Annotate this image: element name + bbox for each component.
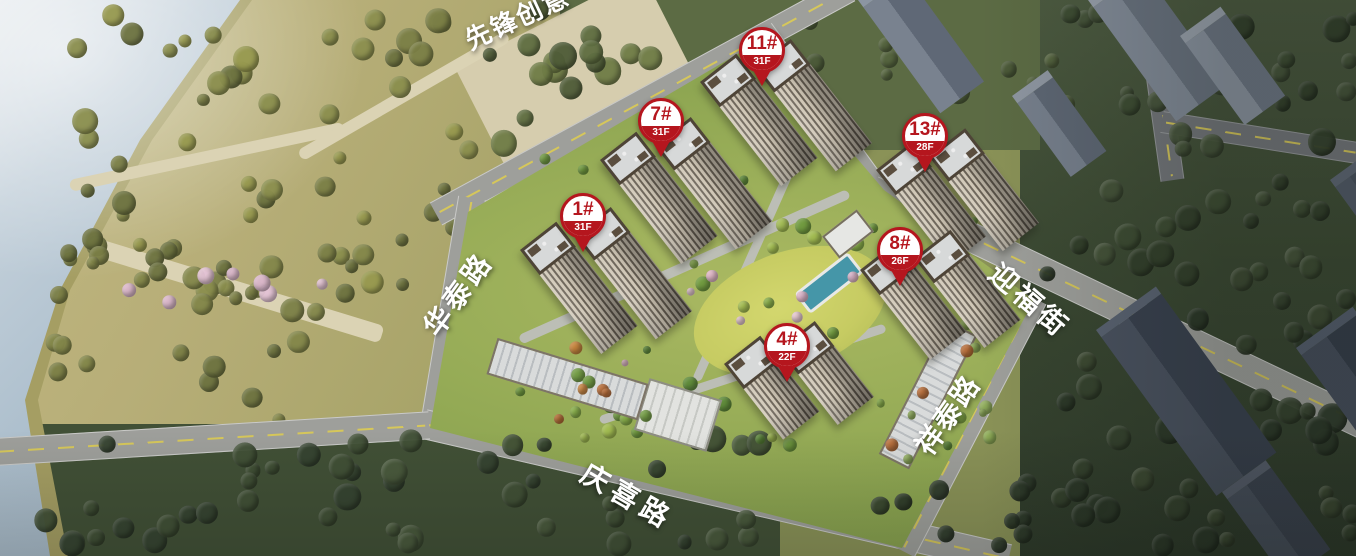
pin-bubble: 1# 31F — [560, 193, 606, 239]
tree — [1004, 513, 1020, 529]
tree — [396, 234, 409, 247]
tree — [638, 47, 662, 71]
tree — [1236, 334, 1257, 355]
pin-number: 4# — [767, 326, 807, 351]
tree — [736, 510, 756, 530]
tree — [1093, 497, 1120, 524]
tree — [1255, 191, 1271, 207]
tree — [386, 522, 401, 537]
tree — [1308, 128, 1336, 156]
tree — [580, 432, 591, 443]
pin-number: 11# — [742, 30, 782, 55]
tree — [1341, 524, 1356, 541]
tree — [526, 474, 541, 489]
aerial-site-map: 先锋创意 华泰路 迎福街 祥泰路 庆喜路 1# 31F 4# 22F 7# 31… — [0, 0, 1356, 556]
tree — [163, 43, 178, 58]
tree — [242, 387, 263, 408]
pin-floors: 31F — [641, 126, 681, 141]
tree — [348, 434, 369, 455]
pin-floors: 28F — [905, 141, 945, 156]
tree — [233, 46, 259, 72]
tree — [1342, 504, 1356, 523]
tree — [267, 344, 281, 358]
tree — [1076, 374, 1102, 400]
tree — [1219, 532, 1235, 548]
pin-floors: 31F — [742, 55, 782, 70]
tree — [577, 384, 588, 395]
tree — [1230, 268, 1254, 292]
pin-tail — [916, 156, 934, 172]
tree — [86, 256, 99, 269]
tree — [80, 183, 95, 198]
tree — [579, 40, 603, 64]
pin-floors: 26F — [880, 255, 920, 270]
tree — [385, 49, 403, 67]
tree — [570, 406, 582, 418]
tree — [336, 284, 355, 303]
pin-tail — [652, 141, 670, 157]
tree — [253, 275, 270, 292]
tree — [501, 481, 528, 508]
tree — [364, 10, 385, 31]
tree — [1151, 534, 1174, 556]
tree — [111, 156, 128, 173]
tree — [1346, 12, 1356, 26]
tree — [705, 528, 728, 551]
tree — [265, 461, 280, 476]
tree — [396, 278, 410, 292]
tree — [317, 243, 336, 262]
tree — [112, 191, 136, 215]
pin-bubble: 8# 26F — [877, 227, 923, 273]
building-pin-1[interactable]: 1# 31F — [560, 193, 606, 252]
tree — [606, 531, 631, 556]
tree — [502, 434, 524, 456]
tree — [1336, 82, 1356, 102]
tree — [99, 436, 116, 453]
pin-tail — [891, 270, 909, 286]
tree — [677, 534, 692, 549]
tree — [515, 387, 525, 397]
tree — [361, 271, 384, 294]
pin-tail — [753, 70, 771, 86]
tree — [755, 434, 765, 444]
tree — [397, 532, 418, 553]
tree — [67, 38, 87, 58]
tree — [1164, 496, 1190, 522]
tree — [549, 42, 577, 70]
tree — [559, 77, 582, 100]
tree — [178, 133, 196, 151]
pin-bubble: 13# 28F — [902, 113, 948, 159]
tree — [83, 501, 99, 517]
building-pin-4[interactable]: 4# 22F — [764, 323, 810, 382]
tree — [929, 480, 949, 500]
tree — [446, 123, 464, 141]
tree — [121, 22, 144, 45]
tree — [880, 68, 893, 81]
tree — [191, 293, 213, 315]
tree — [1200, 134, 1224, 158]
tree — [1305, 416, 1333, 444]
tree — [157, 514, 180, 537]
tree — [1071, 504, 1095, 528]
tree — [60, 244, 78, 262]
tree — [425, 8, 451, 34]
tree — [261, 179, 283, 201]
pin-floors: 22F — [767, 351, 807, 366]
tree — [73, 108, 99, 134]
pin-number: 8# — [880, 230, 920, 255]
pin-bubble: 4# 22F — [764, 323, 810, 369]
pin-bubble: 7# 31F — [638, 98, 684, 144]
tree — [352, 244, 374, 266]
tree — [1207, 509, 1225, 527]
tree — [529, 62, 553, 86]
tree — [648, 460, 666, 478]
tree — [1341, 53, 1356, 69]
tree — [880, 50, 898, 68]
tree — [517, 110, 534, 127]
pin-tail — [778, 366, 796, 382]
tree — [1065, 478, 1089, 502]
tree — [767, 433, 777, 443]
tree — [389, 76, 411, 98]
tree — [179, 505, 198, 524]
tree — [205, 27, 222, 44]
tree — [1277, 51, 1295, 69]
pin-floors: 31F — [563, 221, 603, 236]
tree — [321, 29, 338, 46]
pin-tail — [574, 236, 592, 252]
tree — [328, 453, 355, 480]
tree — [53, 336, 72, 355]
pin-number: 7# — [641, 101, 681, 126]
pin-number: 1# — [563, 196, 603, 221]
tree — [280, 298, 304, 322]
tree — [578, 165, 589, 176]
building-pin-8[interactable]: 8# 26F — [877, 227, 923, 286]
tree — [317, 279, 328, 290]
tree — [315, 176, 336, 197]
building-pin-7[interactable]: 7# 31F — [638, 98, 684, 157]
tree — [1283, 322, 1304, 343]
tree — [59, 531, 84, 556]
building-pin-11[interactable]: 11# 31F — [739, 27, 785, 86]
tree — [1249, 389, 1272, 412]
tree — [991, 537, 1007, 553]
tree — [602, 424, 617, 439]
tree — [1056, 392, 1075, 411]
pin-bubble: 11# 31F — [739, 27, 785, 73]
tree — [229, 291, 243, 305]
building-pin-13[interactable]: 13# 28F — [902, 113, 948, 172]
tree — [1001, 61, 1018, 78]
tree — [122, 283, 136, 297]
pin-number: 13# — [905, 116, 945, 141]
tree — [352, 37, 375, 60]
tree — [207, 71, 231, 95]
tree — [847, 271, 858, 282]
tree — [1118, 93, 1141, 116]
tree — [554, 414, 564, 424]
tree — [102, 4, 124, 26]
tree — [243, 207, 259, 223]
tree — [1272, 174, 1289, 191]
tree — [1175, 140, 1192, 157]
tree — [87, 529, 105, 547]
tree — [356, 211, 371, 226]
tree — [1206, 189, 1232, 215]
tree — [537, 437, 552, 452]
tree — [203, 355, 226, 378]
